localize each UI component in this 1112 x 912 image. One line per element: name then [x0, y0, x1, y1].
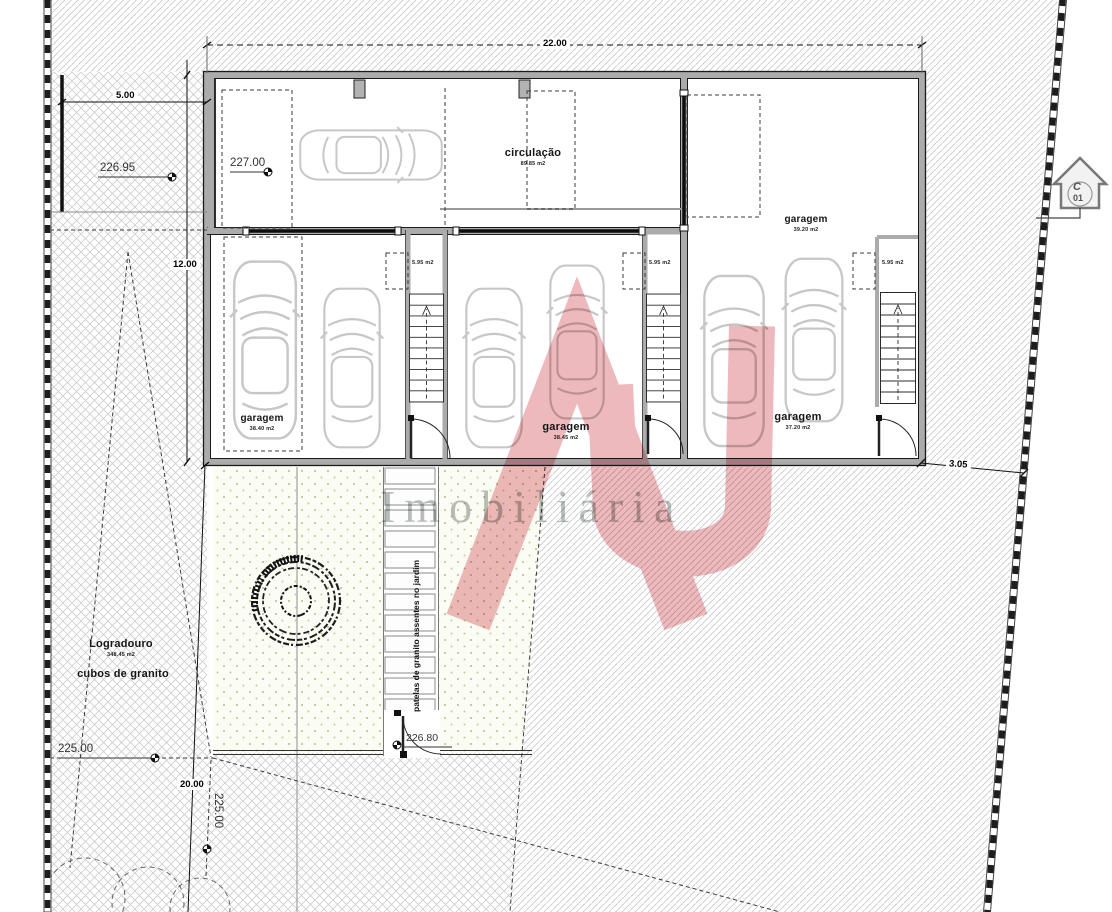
room-area-garagem-2: 38.45 m2: [524, 435, 608, 441]
section-marker-number: 01: [1073, 193, 1083, 203]
elevation-upper-terrace: 226.95: [100, 162, 135, 174]
site-area-logradouro: 348.45 m2: [66, 652, 176, 658]
room-label-garagem-2: garagem: [524, 421, 608, 433]
boundary-line-left: [44, 0, 51, 912]
room-area-circulacao: 89.85 m2: [478, 161, 588, 167]
dimension-depth-bottom: 20.00: [177, 779, 207, 790]
site-label-logradouro: Logradouro: [66, 638, 176, 650]
plan-linework: [0, 0, 1112, 912]
elevation-garden-level: 225.00: [212, 793, 224, 828]
elevation-street-level: 225.00: [58, 743, 93, 755]
elevation-garden-entry: 226.80: [406, 732, 438, 744]
room-area-garagem-right: 39.20 m2: [766, 227, 846, 233]
room-area-garagem-1: 38.40 m2: [222, 426, 302, 432]
room-area-garagem-3: 37.20 m2: [756, 425, 840, 431]
room-label-garagem-1: garagem: [222, 413, 302, 424]
elevation-garage-floor: 227.00: [230, 157, 265, 169]
stair-1-area: 5.95 m2: [412, 260, 434, 266]
room-label-circulacao: circulação: [478, 147, 588, 159]
floor-plan-canvas: 22.00 5.00 12.00 20.00 3.05 226.95 227.0…: [0, 0, 1112, 912]
staircase: [881, 293, 916, 404]
staircase: [409, 294, 443, 402]
walkway-note: patelas de granito assentes no jardim: [411, 560, 421, 712]
site-label-cubos-granito: cubos de granito: [48, 668, 198, 680]
stair-3-area: 5.95 m2: [882, 260, 904, 266]
stair-2-area: 5.95 m2: [649, 260, 671, 266]
dimension-depth-left: 12.00: [170, 259, 200, 270]
room-label-garagem-right: garagem: [766, 214, 846, 225]
dimension-left-setback: 5.00: [113, 90, 138, 101]
watermark-brand-text: Imobiliária: [380, 480, 683, 533]
section-marker-letter: C: [1073, 181, 1081, 193]
dimension-right-gap: 3.05: [946, 458, 971, 471]
staircase: [646, 294, 680, 402]
room-label-garagem-3: garagem: [756, 411, 840, 423]
dimension-top-width: 22.00: [540, 38, 570, 49]
